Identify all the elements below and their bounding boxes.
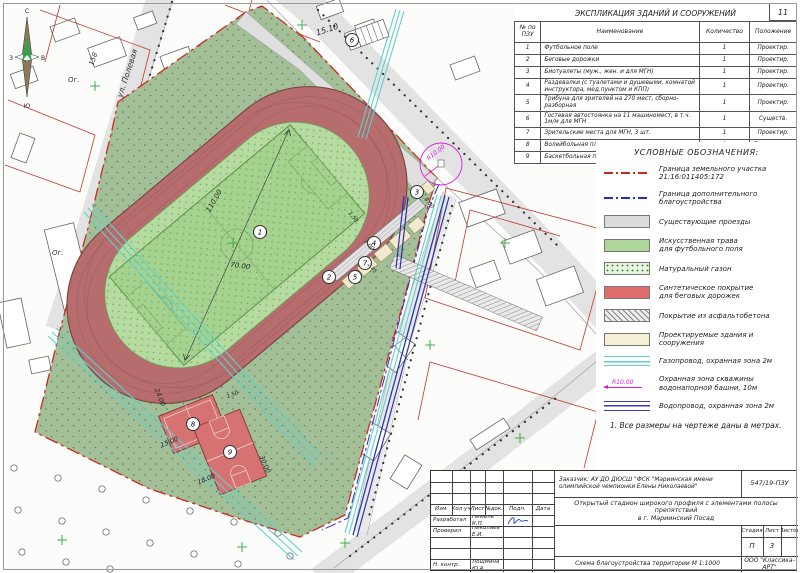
sheet-col: Лист <box>763 525 781 537</box>
doc-code: 547/19-ПЗУ <box>741 471 798 497</box>
table-row: 4Раздевалки (с туалетами и душевыми, ком… <box>515 79 797 95</box>
legend-item: Газопровод, охранная зона 2м <box>604 356 797 366</box>
svg-text:6: 6 <box>350 37 355 45</box>
project-name: Открытый стадион широкого профиля с элем… <box>554 497 798 525</box>
drawing-sheet: R10.00 Р 1 2 3 4 5 6 7 8 9 <box>0 0 800 573</box>
name-developed: Нимель К.П. <box>470 515 505 526</box>
stage-col: Стадия <box>741 525 763 537</box>
sheets-col: Листов <box>781 525 798 537</box>
marker-9: 9 <box>224 446 237 459</box>
legend-panel: УСЛОВНЫЕ ОБОЗНАЧЕНИЯ: Граница земельного… <box>596 142 797 470</box>
col-koluch: Кол.уч <box>452 504 470 515</box>
table-row: 1Футбольное поле1Проектир. <box>515 43 797 55</box>
svg-text:2: 2 <box>327 274 332 282</box>
col-qty: Количество <box>699 22 750 43</box>
marker-1: 1 <box>254 226 267 239</box>
legend-item: Граница дополнительного благоустройства <box>604 190 797 206</box>
compass-s: Ю <box>24 103 31 110</box>
gas-pipeline-swatch <box>604 356 650 366</box>
col-data: Дата <box>532 504 554 515</box>
marker-5: 5 <box>349 271 362 284</box>
legend-note: 1. Все размеры на чертеже даны в метрах. <box>610 421 797 430</box>
name-ncontrol: Лощмина Ю.А. <box>470 559 505 572</box>
svg-text:8: 8 <box>191 421 196 429</box>
landscaping-boundary-swatch <box>604 197 650 199</box>
col-list: Лист <box>470 504 485 515</box>
marker-8: 8 <box>187 418 200 431</box>
compass-w: З <box>9 55 13 62</box>
compass-n: С <box>25 8 29 15</box>
legend-item: Натуральный газон <box>604 262 797 275</box>
garden-label-1: Ог. <box>52 249 63 257</box>
role-developed: Разработал <box>431 515 472 526</box>
water-pipeline-swatch <box>604 401 650 411</box>
legend-item: Существующие проезды <box>604 215 797 228</box>
artificial-grass-swatch <box>604 239 650 252</box>
natural-lawn-swatch <box>604 262 650 275</box>
scheme-name: Схема благоустройства территории М 1:100… <box>554 556 741 572</box>
legend-item: Искусственная трава для футбольного поля <box>604 237 797 253</box>
sheets-value <box>781 537 798 556</box>
marker-3: 3 <box>411 186 424 199</box>
driveways-swatch <box>604 215 650 228</box>
legend-item: Проектируемые здания и сооружения <box>604 331 797 347</box>
svg-text:1: 1 <box>258 229 262 237</box>
synthetic-track-swatch <box>604 286 650 299</box>
asphalt-swatch <box>604 309 650 322</box>
col-name: Наименование <box>541 22 699 43</box>
legend-item: Синтетическое покрытие для беговых дорож… <box>604 284 797 300</box>
garden-label-2: Ог. <box>68 76 79 84</box>
sheet-value: 3 <box>763 537 781 556</box>
legend-title: УСЛОВНЫЕ ОБОЗНАЧЕНИЯ: <box>596 148 797 157</box>
legend-item: R10.00 Охранная зона скважины водонапорн… <box>604 375 797 391</box>
sheet-corner-mark: 11 <box>769 4 796 21</box>
explication-title: ЭКСПЛИКАЦИЯ ЗДАНИЙ И СООРУЖЕНИЙ <box>514 9 797 18</box>
svg-text:5: 5 <box>353 274 358 282</box>
title-block: Изм. Кол.уч Лист №док. Подп. Дата Разраб… <box>430 470 797 571</box>
table-header-row: № по ПЗУ Наименование Количество Положен… <box>515 22 797 43</box>
table-row: 3Биотуалеты (муж., жен. и для МГН)1Проек… <box>515 67 797 79</box>
stage-value: П <box>741 537 763 556</box>
company: ООО "Классика-АРТ" <box>741 556 798 572</box>
table-row: 6Гостевая автостоянка на 11 машиномест, … <box>515 111 797 127</box>
role-ncontrol: Н. контр. <box>431 559 472 572</box>
legend-item: Водопровод, охранная зона 2м <box>604 401 797 411</box>
north-compass: С Ю З В <box>9 8 45 110</box>
legend-item: Покрытие из асфальтобетона <box>604 309 797 322</box>
col-position: Положение <box>750 22 797 43</box>
svg-text:9: 9 <box>228 449 233 457</box>
col-number: № по ПЗУ <box>515 22 541 43</box>
well-zone-swatch: R10.00 <box>604 376 650 392</box>
projected-buildings-swatch <box>604 333 650 346</box>
table-row: 2Беговые дорожки1Проектир. <box>515 55 797 67</box>
col-ndok: №док. <box>485 504 503 515</box>
svg-text:3: 3 <box>415 189 419 197</box>
table-row: 7Зрительские места для МГН, 3 шт.1Проект… <box>515 127 797 139</box>
table-row: 5Трибуна для зрителей на 270 мест, сборн… <box>515 95 797 111</box>
water-tower <box>438 160 444 167</box>
marker-2: 2 <box>323 271 336 284</box>
compass-e: В <box>41 55 45 62</box>
customer: Заказчик: АУ ДО ДЮСШ "ФСК "Мариинская им… <box>557 471 741 497</box>
name-checked: Николаев Е.И. <box>470 526 505 537</box>
marker-6: 6 <box>346 34 359 47</box>
role-checked: Проверил <box>431 526 472 537</box>
col-izm: Изм. <box>431 504 452 515</box>
parcel-boundary-swatch <box>604 172 650 174</box>
signature <box>506 514 530 528</box>
legend-item: Граница земельного участка 21:16:011405:… <box>604 165 797 181</box>
